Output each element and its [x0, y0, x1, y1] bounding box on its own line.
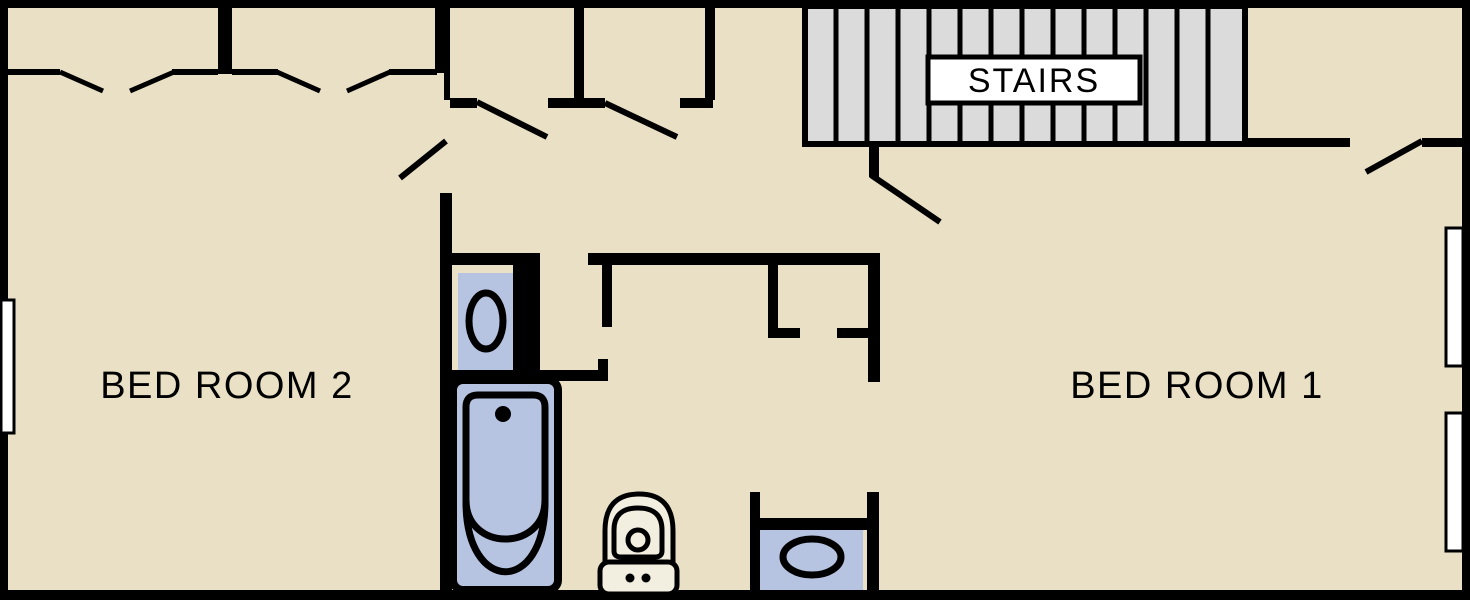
sink-icon — [750, 518, 879, 590]
closet-front-wall — [172, 69, 218, 75]
closet-wall — [768, 265, 778, 338]
wall-segment — [1422, 138, 1466, 147]
wall-segment — [868, 265, 880, 382]
floor-plan-canvas: STAIRS — [0, 0, 1470, 600]
bedroom2-label: BED ROOM 2 — [100, 365, 354, 407]
floor-plan: STAIRS — [0, 0, 1470, 600]
bedroom1-label: BED ROOM 1 — [1070, 365, 1324, 407]
wall-segment — [513, 265, 540, 380]
tub-drain — [495, 406, 511, 422]
closet-front-wall — [232, 69, 278, 75]
sink-icon — [458, 273, 513, 370]
wall-segment — [867, 492, 879, 592]
closet-wall — [837, 328, 868, 338]
vanity-counter-edge — [750, 518, 879, 530]
closet-front-wall — [5, 69, 60, 75]
toilet-tank — [600, 562, 677, 594]
stairs-label: STAIRS — [968, 62, 1100, 100]
closet-front-wall — [389, 69, 437, 75]
wall-segment — [1245, 138, 1350, 147]
closet-side-wall — [705, 8, 715, 100]
door-jamb — [602, 265, 612, 327]
wall-segment — [435, 0, 450, 73]
door-jamb — [598, 359, 608, 371]
wall-segment — [588, 253, 880, 265]
closet-wall — [778, 328, 800, 338]
closet-divider-wall — [218, 8, 232, 74]
toilet-bolt — [642, 574, 651, 583]
window — [1446, 413, 1463, 551]
door-jamb — [869, 144, 879, 177]
wall-segment — [444, 73, 450, 100]
wall-segment — [750, 492, 760, 592]
closet-divider-wall — [574, 8, 584, 100]
wall-segment — [448, 253, 540, 265]
window — [1, 300, 14, 433]
toilet-icon — [600, 494, 677, 594]
wall-bottom — [0, 590, 1470, 600]
wall-top — [0, 0, 1470, 8]
toilet-bolt — [626, 574, 635, 583]
stairs: STAIRS — [805, 6, 1245, 144]
bathtub-icon — [453, 380, 558, 590]
door-jamb — [450, 98, 477, 108]
window — [1446, 228, 1463, 366]
floor-background — [0, 0, 1470, 600]
